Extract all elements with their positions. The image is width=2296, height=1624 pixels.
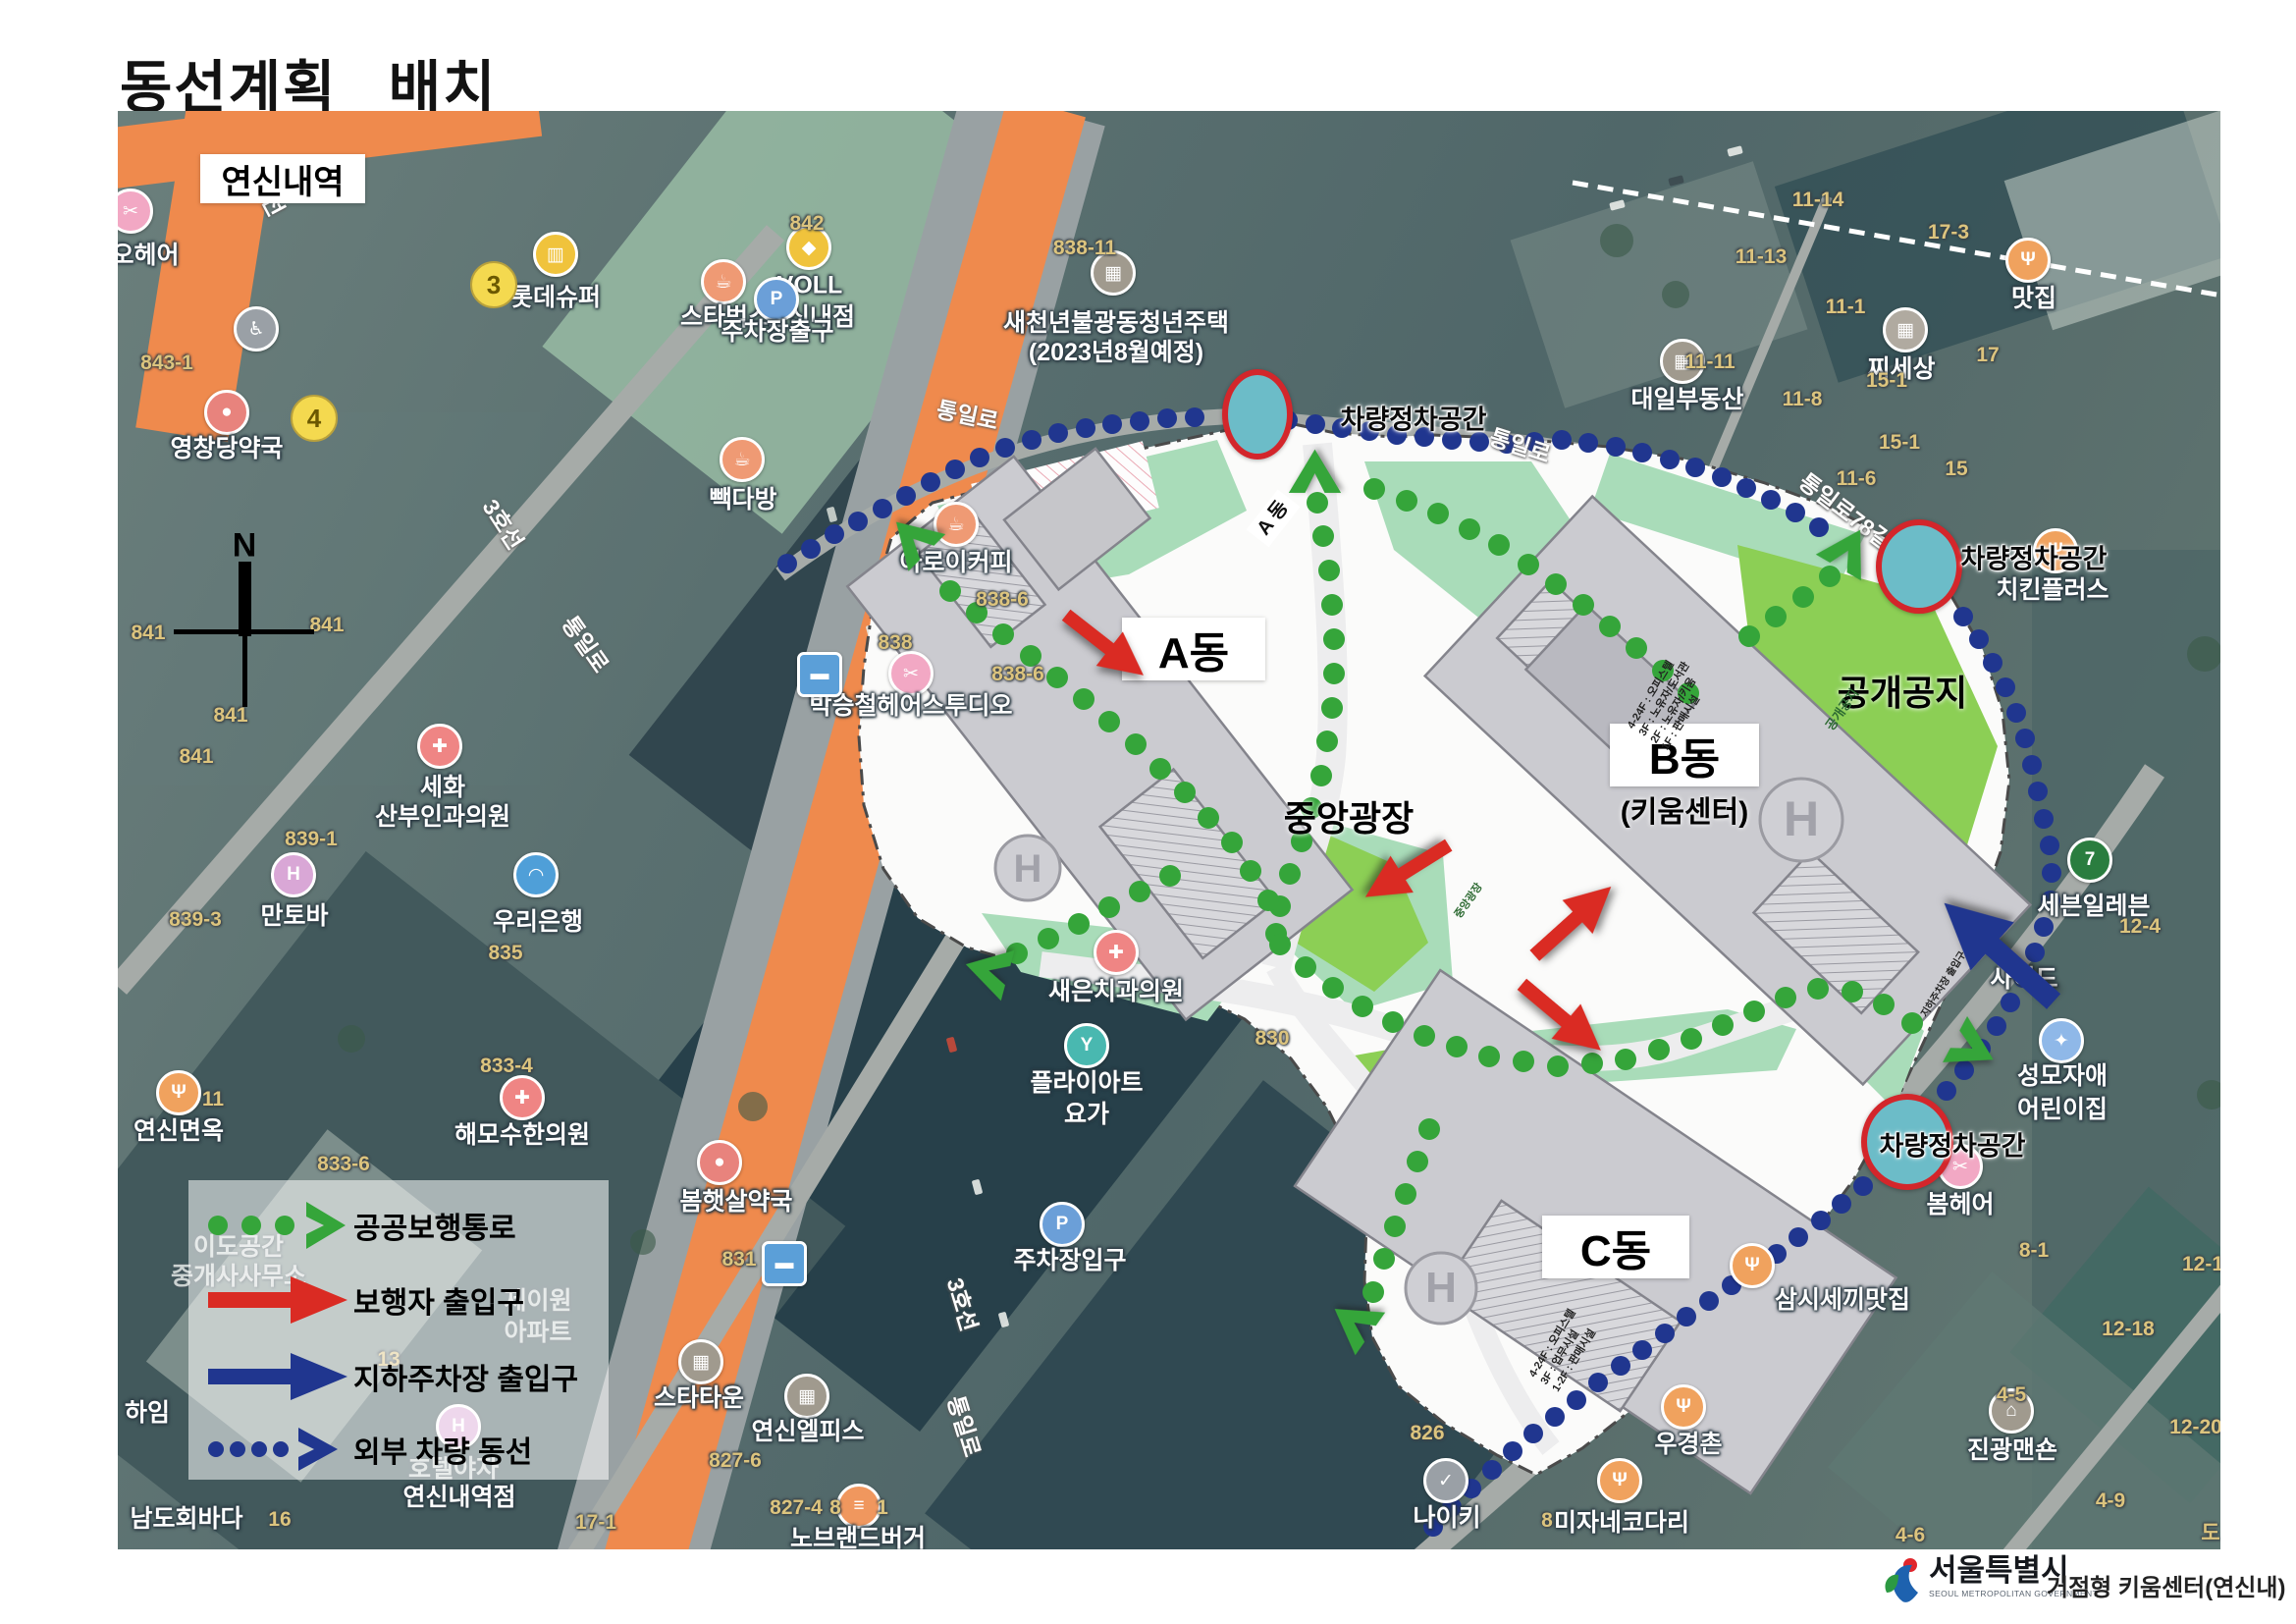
exit-4: 4 [291, 395, 338, 442]
paik-dabang-icon: ☕ [720, 437, 765, 482]
samsisekki-matjip-label: 삼시세끼맛집 [1775, 1280, 1910, 1316]
yeonsinnae-branch-label: 연신내역점 [402, 1478, 515, 1513]
parcel-도: 도 [2201, 1517, 2219, 1546]
mijane-kodari-icon: Ψ [1597, 1458, 1642, 1503]
walkway-c-west-dot [1418, 1118, 1440, 1140]
parcel-826: 826 [1410, 1422, 1444, 1445]
map-legend: 공공보행통로 보행자 출입구 지하주차장 출입구 [188, 1180, 609, 1480]
legend-row-pedestrian-entrance: 보행자 출입구 [188, 1269, 609, 1331]
seongmo-daycare-label: 어린이집 [2017, 1090, 2108, 1125]
vehicle-route-2-dot [1306, 414, 1325, 434]
vehicle-route-3-dot [2015, 729, 2035, 748]
sehwa-obgyn-label: 산부인과의원 [375, 797, 510, 833]
bldg-b-sublabel: (키움센터) [1621, 787, 1748, 831]
bldg-c-label: C동 [1542, 1216, 1689, 1278]
samsisekki-matjip-icon: Ψ [1730, 1243, 1775, 1288]
vehicle-route-3-dot [2028, 782, 2048, 801]
central-plaza-label: 중앙광장 [1284, 790, 1414, 841]
matjip-partial-label: 맛집 [2011, 279, 2056, 314]
vehicle-route-1-dot [1157, 408, 1177, 428]
parcel-838-6: 838-6 [976, 588, 1029, 612]
yeonsin-myeonok-icon: Ψ [156, 1070, 201, 1115]
walkway-a-diagonal-dot [1198, 807, 1219, 829]
vehicle-route-1-dot [873, 499, 892, 518]
legend-label: 외부 차량 동선 [353, 1428, 532, 1471]
walkway-east-west-dot [1873, 994, 1895, 1015]
bom-hair-label: 봄헤어 [1926, 1185, 1994, 1220]
jingwang-mansion-label: 진광맨숀 [1967, 1431, 2057, 1466]
walkway-openspace-dot [1792, 586, 1814, 608]
nike-icon: ✓ [1423, 1458, 1468, 1503]
walkway-north-dot [1323, 663, 1345, 684]
bomhaessal-pharmacy-icon: ● [697, 1140, 742, 1185]
walkway-a-diagonal-dot [1221, 832, 1243, 853]
parcel-15-1: 15-1 [1866, 369, 1907, 393]
parcel-839-3: 839-3 [169, 908, 222, 932]
walkway-ab-dot [1396, 490, 1417, 512]
parcel-842: 842 [789, 212, 824, 236]
parcel-11: 11 [202, 1088, 224, 1111]
walkway-north-dot [1323, 628, 1345, 650]
parcel-17-3: 17-3 [1928, 221, 1969, 244]
walkway-ab-dot [1573, 594, 1594, 616]
walkway-a-diagonal-dot [1073, 688, 1095, 710]
walkway-c-west-dot [1373, 1248, 1395, 1270]
vehicle-route-3-dot [2006, 703, 2026, 723]
blue-dots-arrow-icon [204, 1420, 351, 1479]
legend-label: 지하주차장 출입구 [353, 1355, 578, 1398]
legend-label: 보행자 출입구 [353, 1278, 524, 1322]
svg-text:H: H [1425, 1264, 1457, 1312]
vehicle-route-3-dot [2022, 755, 2042, 775]
walkway-north-dot [1321, 594, 1343, 616]
walkway-east-west-dot [1743, 1001, 1765, 1022]
mantoba-icon: H [271, 852, 316, 897]
stop-zone-2 [1876, 519, 1962, 614]
walkway-east-west-dot [1352, 996, 1373, 1017]
vehicle-route-2-dot [1786, 503, 1805, 522]
vehicle-route-1-dot [995, 438, 1015, 458]
parcel-12-1: 12-1 [2182, 1253, 2220, 1276]
parcel-8-1: 8-1 [2019, 1239, 2049, 1263]
station-yeonsinnae: 연신내역 [200, 154, 365, 203]
bomhaessal-pharmacy-label: 봄햇살약국 [679, 1182, 792, 1218]
parcel-4-5: 4-5 [1997, 1383, 2026, 1407]
vehicle-route-4-dot [1567, 1390, 1586, 1410]
walkway-c-west-dot [1407, 1151, 1428, 1172]
haemosu-clinic-icon: ✚ [500, 1075, 545, 1120]
vehicle-route-4-dot [1611, 1356, 1630, 1376]
seven-eleven-icon: 7 [2067, 838, 2112, 883]
walkway-east-west-dot [1775, 987, 1796, 1008]
bldg-b-label: B동 [1610, 724, 1759, 786]
vehicle-route-4-dot [1832, 1194, 1851, 1214]
compass-arm [174, 629, 314, 634]
walkway-east-west-dot [1842, 981, 1863, 1002]
walkway-east-west-dot [1322, 977, 1344, 999]
mantoba-label: 만토바 [260, 896, 328, 932]
parcel-12-18: 12-18 [2102, 1318, 2155, 1341]
legend-label: 공공보행통로 [353, 1204, 516, 1247]
vehicle-route-1-dot [1102, 414, 1122, 434]
stop-zone-label-1: 차량정차공간 [1340, 399, 1486, 437]
vehicle-route-4-dot [1588, 1373, 1608, 1392]
walkway-ab-dot [1518, 554, 1539, 575]
walkway-openspace-dot [1765, 606, 1787, 627]
walkway-ab-dot [1363, 478, 1385, 500]
walkway-north-dot [1321, 697, 1343, 719]
seongmo-daycare-label: 성모자애 [2017, 1056, 2108, 1092]
woori-bank-icon: ◠ [513, 852, 559, 897]
walkway-a-diagonal-dot [1257, 890, 1279, 911]
walkway-north-dot [1318, 560, 1340, 581]
walkway-east-west-dot [1648, 1039, 1670, 1060]
svg-text:H: H [1784, 791, 1819, 846]
parcel-831: 831 [721, 1248, 756, 1272]
svg-text:H: H [1014, 847, 1042, 891]
parcel-12-4: 12-4 [2119, 915, 2161, 939]
jjisesang-icon: ▦ [1883, 307, 1928, 352]
mijane-kodari-label: 미자네코다리 [1554, 1503, 1689, 1539]
vehicle-route-1-dot [1048, 423, 1068, 443]
sehwa-obgyn-icon: ✚ [417, 724, 462, 769]
parcel-827-6: 827-6 [709, 1449, 762, 1473]
vehicle-route-3-dot [2034, 809, 2054, 829]
parcel-841: 841 [213, 704, 247, 728]
parcel-8: 8 [1541, 1509, 1553, 1533]
parcel-1: 1 [877, 1496, 888, 1520]
walkway-a-diagonal-dot [1240, 860, 1261, 882]
parcel-839-1: 839-1 [285, 828, 338, 851]
vehicle-route-4-dot [1545, 1407, 1565, 1427]
vehicle-route-4-dot [1811, 1211, 1831, 1230]
parking-exit-poi-label: 주차장출구 [721, 312, 833, 348]
vehicle-route-3-dot [1983, 653, 2002, 673]
walkway-north-dot [1312, 525, 1334, 547]
walk-entry-north [1285, 443, 1351, 504]
walkway-east-west-dot [1901, 1012, 1923, 1034]
walkway-north-dot [1310, 765, 1332, 786]
vehicle-route-3-dot [1953, 607, 1973, 626]
vehicle-route-1-dot [801, 539, 821, 559]
lotte-super-label: 롯데슈퍼 [510, 278, 601, 313]
parcel-11-8: 11-8 [1783, 388, 1823, 411]
walkway-c-west-dot [1395, 1183, 1416, 1205]
vehicle-route-2-dot [1660, 450, 1680, 469]
vehicle-route-4-dot [1503, 1441, 1522, 1461]
parcel-841: 841 [309, 614, 344, 637]
vehicle-route-2-dot [1712, 467, 1732, 487]
ugyeongchon-icon: Ψ [1661, 1384, 1706, 1430]
vehicle-route-4-dot [1789, 1227, 1808, 1247]
parcel-830: 830 [1255, 1027, 1289, 1051]
walkway-to-west-exit-dot [1098, 896, 1120, 918]
vehicle-route-4-dot [1655, 1324, 1675, 1343]
wheelchair-spot-icon: ♿ [234, 306, 279, 352]
walkway-ab-dot [1599, 616, 1621, 637]
vehicle-route-1-dot [825, 524, 844, 544]
walkway-east-west-dot [1615, 1049, 1636, 1070]
vehicle-route-1-dot [1185, 407, 1204, 427]
bus-stop-2-icon: ▬ [762, 1241, 807, 1286]
walkway-ab-dot [1459, 518, 1480, 540]
parcel-11-11: 11-11 [1684, 351, 1735, 374]
walkway-ab-dot [1626, 637, 1647, 659]
walkway-to-west-exit-dot [1129, 881, 1150, 902]
walkway-east-west-dot [1414, 1025, 1435, 1047]
legend-row-parking-entrance: 지하주차장 출입구 [188, 1345, 609, 1408]
walkway-c-west-dot [1384, 1216, 1406, 1237]
compass-arm [242, 636, 247, 707]
vehicle-route-4-dot [1853, 1176, 1873, 1196]
parcel-827-4: 827-4 [770, 1496, 823, 1520]
vehicle-route-2-dot [1761, 490, 1781, 510]
vehicle-route-2-dot [1606, 437, 1626, 457]
matjip-partial-icon: Ψ [2005, 238, 2051, 283]
open-space-label: 공개공지 [1838, 665, 1967, 716]
walkway-east-west-dot [1382, 1011, 1404, 1033]
compass-n-label: N [233, 527, 257, 566]
walkway-ab-dot [1545, 573, 1567, 595]
parcel-4-9: 4-9 [2096, 1489, 2125, 1513]
o-hair-label: 오헤어 [118, 236, 180, 271]
parcel-833-4: 833-4 [480, 1055, 533, 1078]
walkway-north-dot [1316, 731, 1338, 752]
newtown-youth-housing-label: (2023년8월예정) [1029, 333, 1203, 368]
stop-zone-label-3: 차량정차공간 [1879, 1125, 2025, 1164]
nobrand-burger-label: 노브랜드버거 [790, 1519, 926, 1549]
flyart-yoga-label: 플라이아트 [1030, 1063, 1143, 1099]
parcel-8: 8 [829, 1496, 841, 1520]
walkway-a-diagonal-dot [1125, 733, 1147, 755]
paik-dabang-label: 빽다방 [709, 480, 776, 515]
legend-row-public-walkway: 공공보행통로 [188, 1194, 609, 1257]
parcel-833-6: 833-6 [317, 1153, 370, 1176]
parcel-838-6: 838-6 [991, 663, 1044, 686]
legend-row-external-vehicle: 외부 차량 동선 [188, 1418, 609, 1481]
woori-bank-label: 우리은행 [493, 902, 583, 938]
vehicle-route-3-dot [2040, 836, 2059, 855]
bus-stop-1-icon: ▬ [797, 652, 842, 697]
walkway-east-west-dot [1295, 956, 1316, 978]
parcel-838-11: 838-11 [1053, 237, 1116, 260]
yeonsin-elpis-label: 연신엘피스 [751, 1412, 864, 1447]
lotte-super-icon: ▥ [533, 232, 578, 277]
vehicle-route-2-dot [1685, 458, 1705, 477]
ugyeongchon-label: 우경촌 [1654, 1425, 1722, 1460]
namdo-hoebada-label: 남도회바다 [130, 1499, 242, 1535]
saeun-dental-label: 새은치과의원 [1048, 972, 1184, 1007]
daeil-realty-label: 대일부동산 [1630, 380, 1743, 415]
nike-label: 나이키 [1413, 1498, 1480, 1534]
vehicle-route-3-dot [1969, 629, 1989, 649]
parcel-843-1: 843-1 [140, 352, 193, 375]
walkway-openspace-dot [1738, 625, 1760, 647]
walkway-to-west-exit-dot [1038, 928, 1059, 949]
vehicle-route-1-dot [777, 554, 797, 573]
walkway-a-diagonal-dot [992, 623, 1014, 645]
walkway-north-dot [1279, 863, 1301, 885]
haemosu-clinic-label: 해모수한의원 [454, 1115, 590, 1151]
parcel-841: 841 [179, 745, 213, 769]
parcel-12-20: 12-20 [2169, 1416, 2220, 1439]
map-inner: H H H ✂오헤어●영창당약국♿▥롯데슈퍼☕스타벅스◆VOLL연신내점P주차장… [118, 111, 2220, 1549]
parcel-11-13: 11-13 [1735, 245, 1788, 269]
walkway-east-west-dot [1712, 1014, 1734, 1036]
seoul-logo-icon [1880, 1555, 1923, 1610]
walkway-east-west-dot [1681, 1028, 1702, 1050]
vehicle-route-1-dot [921, 472, 940, 492]
vehicle-route-2-dot [1578, 433, 1598, 453]
walkway-east-west-dot [1269, 934, 1291, 955]
parcel-11-14: 11-14 [1792, 189, 1844, 212]
yeonsin-myeonok-label: 연신면옥 [133, 1111, 224, 1147]
parcel-15: 15 [1945, 458, 1967, 481]
vehicle-route-1-dot [1076, 418, 1095, 438]
flyart-yoga-icon: Y [1064, 1023, 1109, 1068]
parcel-17-1: 17-1 [575, 1511, 616, 1535]
walkway-ab-dot [1427, 503, 1449, 524]
blue-arrow-icon [204, 1347, 351, 1406]
vehicle-route-2-dot [1736, 478, 1756, 498]
walkway-east-west-dot [1807, 978, 1829, 1000]
vehicle-route-2-dot [1632, 443, 1652, 462]
parcel-841: 841 [131, 622, 165, 645]
vehicle-route-1-dot [945, 460, 965, 479]
walkway-east-west-dot [1513, 1051, 1534, 1072]
walkway-to-west-exit-dot [1068, 913, 1090, 935]
vehicle-route-1-dot [1130, 411, 1149, 431]
saeun-dental-icon: ✚ [1094, 930, 1139, 975]
parcel-835: 835 [488, 942, 522, 965]
vehicle-route-1-dot [848, 512, 868, 531]
site-map: H H H ✂오헤어●영창당약국♿▥롯데슈퍼☕스타벅스◆VOLL연신내점P주차장… [118, 111, 2220, 1549]
vehicle-route-4-dot [1482, 1460, 1502, 1480]
walkway-a-diagonal-dot [1174, 782, 1196, 803]
vehicle-route-1-dot [1022, 430, 1041, 450]
walkway-a-diagonal-dot [1098, 711, 1120, 732]
yeongchangdang-pharmacy-label: 영창당약국 [170, 429, 283, 464]
vehicle-route-3-dot [2042, 863, 2061, 883]
compass-arm [239, 562, 251, 636]
vehicle-route-4-dot [1699, 1291, 1719, 1311]
walkway-a-diagonal-dot [1149, 758, 1171, 780]
walkway-a-diagonal-dot [1046, 667, 1068, 688]
walkway-east-west-dot [1446, 1036, 1468, 1057]
parcel-11-1: 11-1 [1826, 296, 1866, 319]
walkway-ab-dot [1488, 534, 1510, 556]
parcel-4-6: 4-6 [1896, 1524, 1925, 1547]
vehicle-route-3-dot [1996, 677, 2015, 697]
parking-entrance-poi-label: 주차장입구 [1013, 1241, 1126, 1276]
vehicle-route-4-dot [1677, 1307, 1696, 1326]
vehicle-route-3-dot [1937, 1081, 1956, 1101]
vehicle-route-4-dot [1523, 1424, 1543, 1443]
red-arrow-icon [204, 1271, 351, 1329]
flyart-yoga-label: 요가 [1064, 1095, 1109, 1130]
stop-zone-1 [1222, 369, 1293, 460]
walkway-to-west-exit-dot [1159, 865, 1181, 887]
parcel-17: 17 [1976, 344, 1999, 367]
green-dots-arrow-icon [204, 1196, 351, 1255]
haim-label: 하임 [125, 1393, 170, 1429]
parcel-838: 838 [878, 631, 912, 655]
footer-caption: 거점형 키움센터(연신내) [2047, 1568, 2285, 1602]
walkway-a-diagonal-dot [939, 580, 961, 602]
star-town-label: 스타타운 [654, 1379, 744, 1414]
walkway-east-west-dot [1478, 1046, 1500, 1067]
stop-zone-label-2: 차량정차공간 [1960, 538, 2107, 576]
exit-3: 3 [470, 261, 517, 308]
parcel-15-1: 15-1 [1879, 431, 1920, 455]
vehicle-route-1-dot [970, 448, 989, 467]
parcel-16: 16 [268, 1508, 291, 1532]
vehicle-route-4-dot [1632, 1340, 1652, 1360]
